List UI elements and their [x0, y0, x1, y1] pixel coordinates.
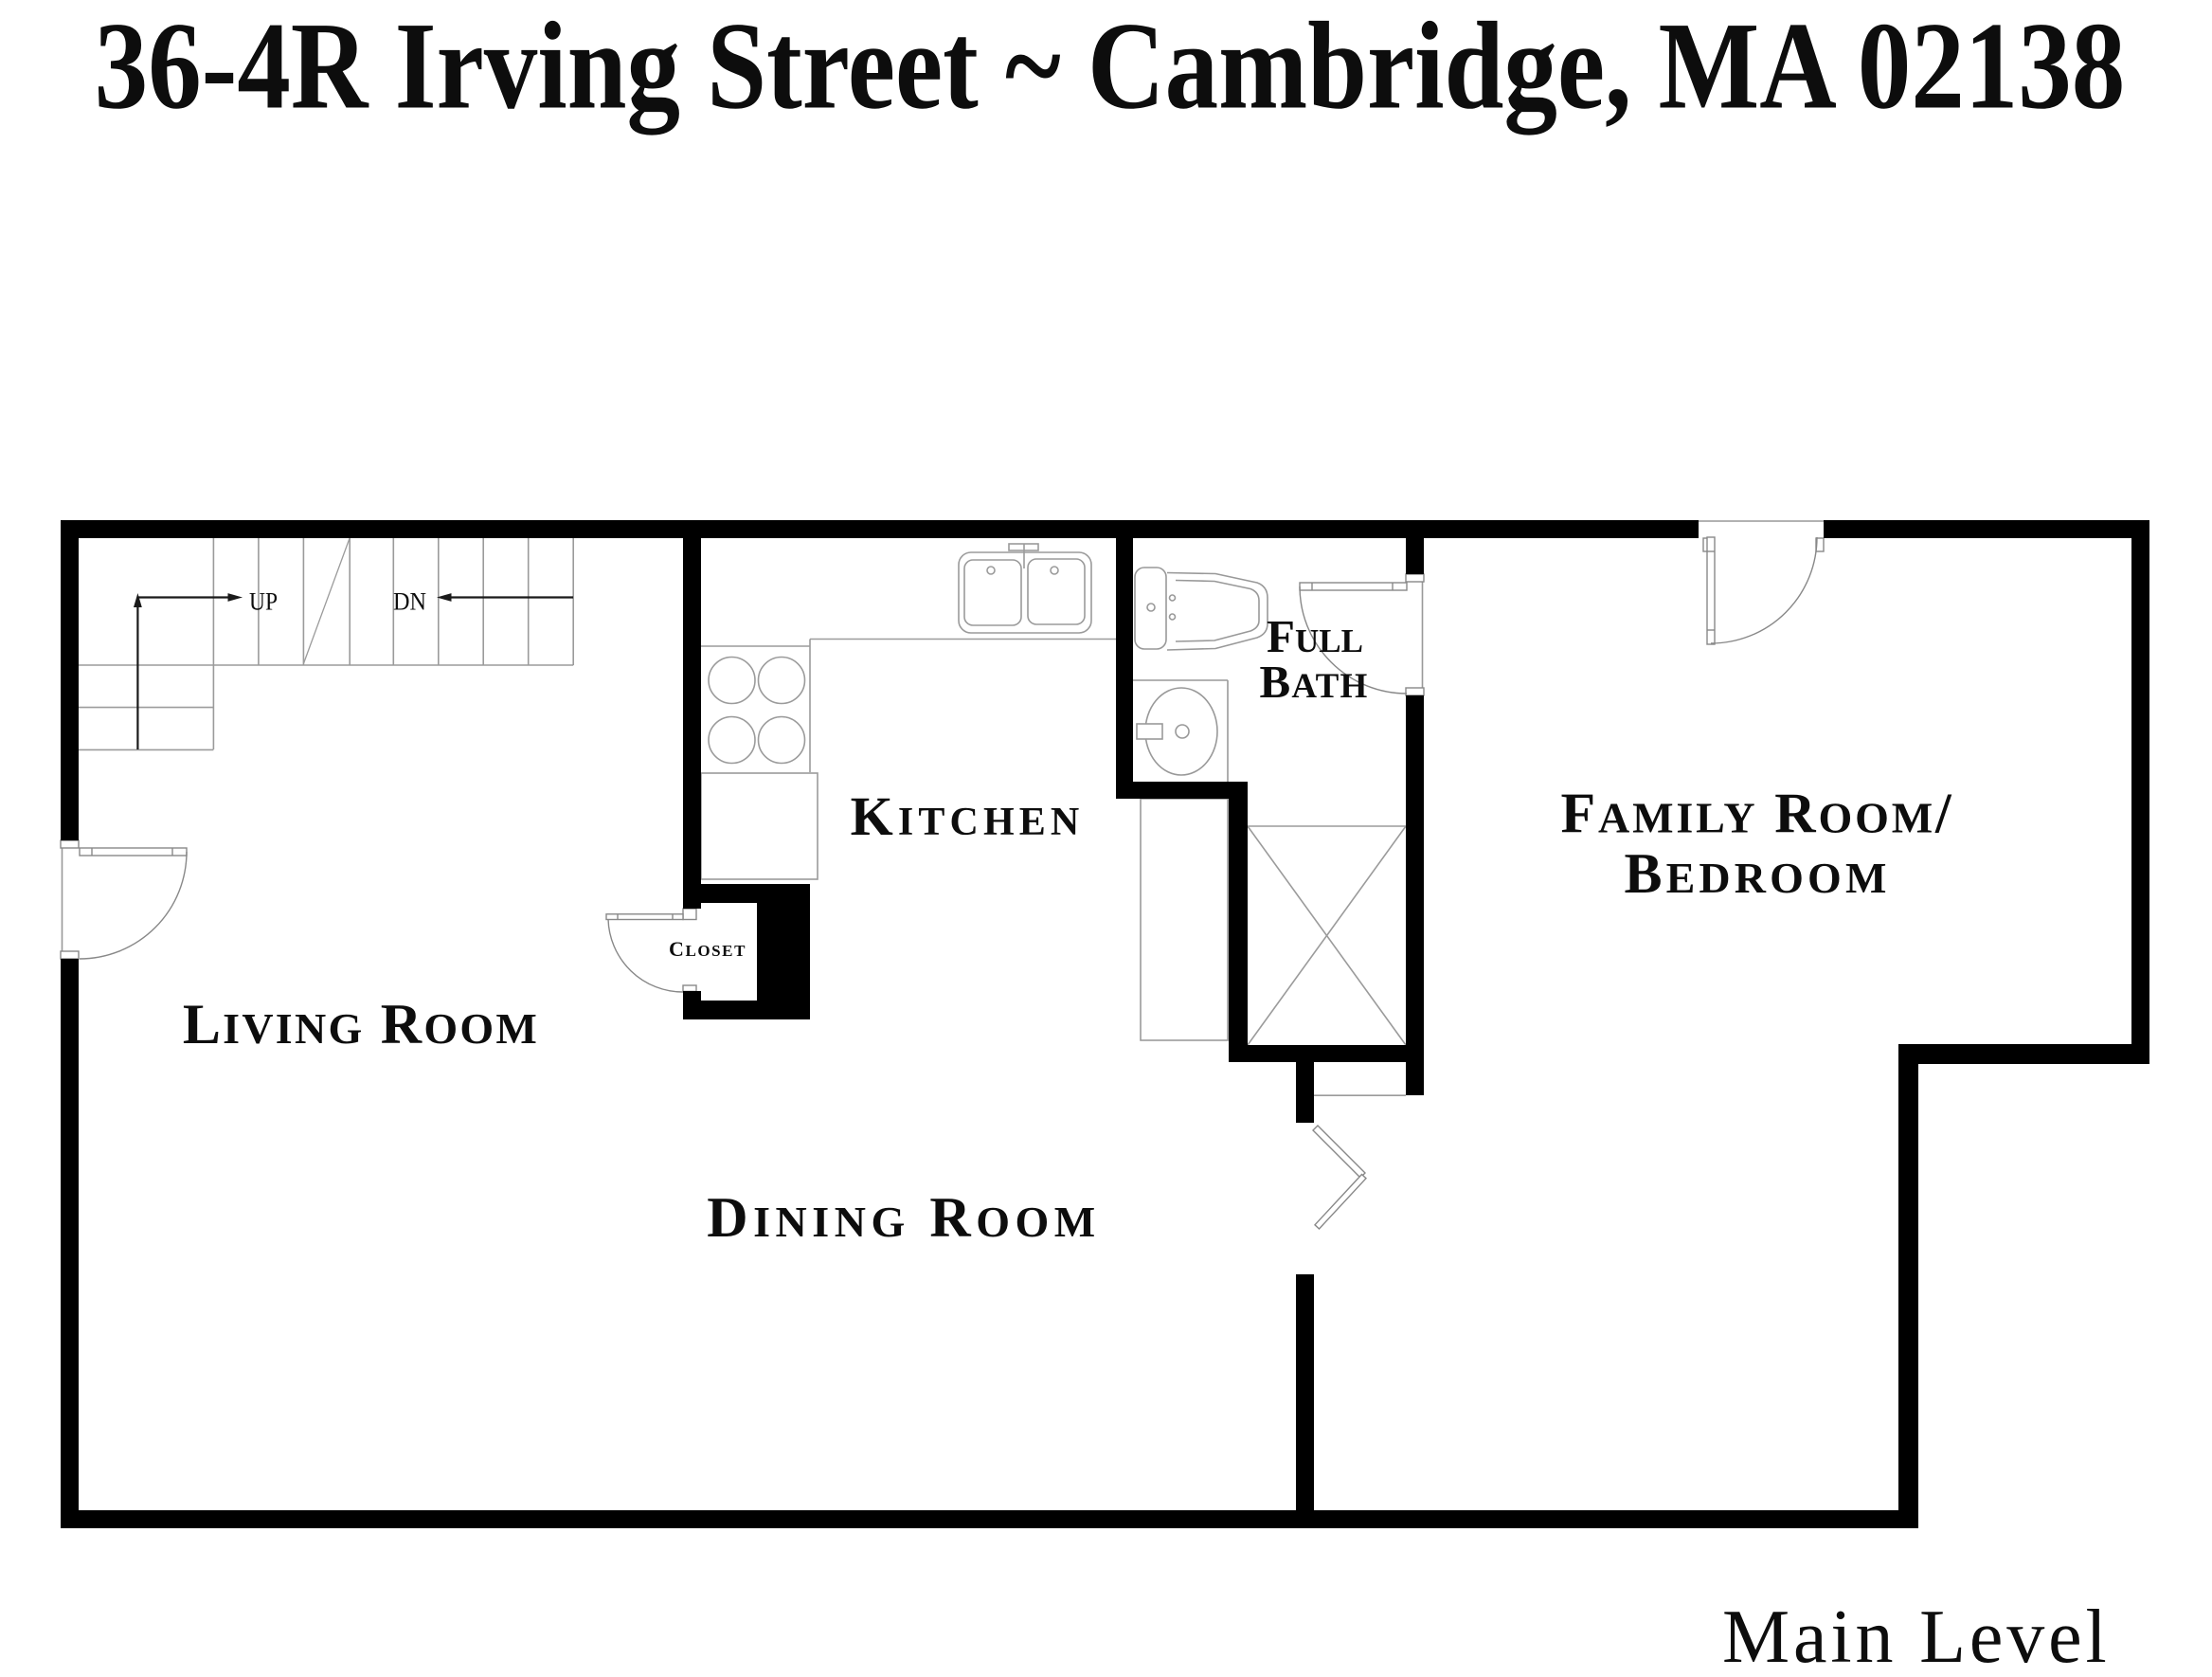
svg-text:UP: UP [249, 588, 278, 616]
svg-text:Main Level: Main Level [1722, 1596, 2111, 1677]
svg-text:DN: DN [393, 588, 426, 616]
svg-text:36-4R Irving Street ~ Cambridg: 36-4R Irving Street ~ Cambridge, MA 0213… [95, 0, 2126, 135]
